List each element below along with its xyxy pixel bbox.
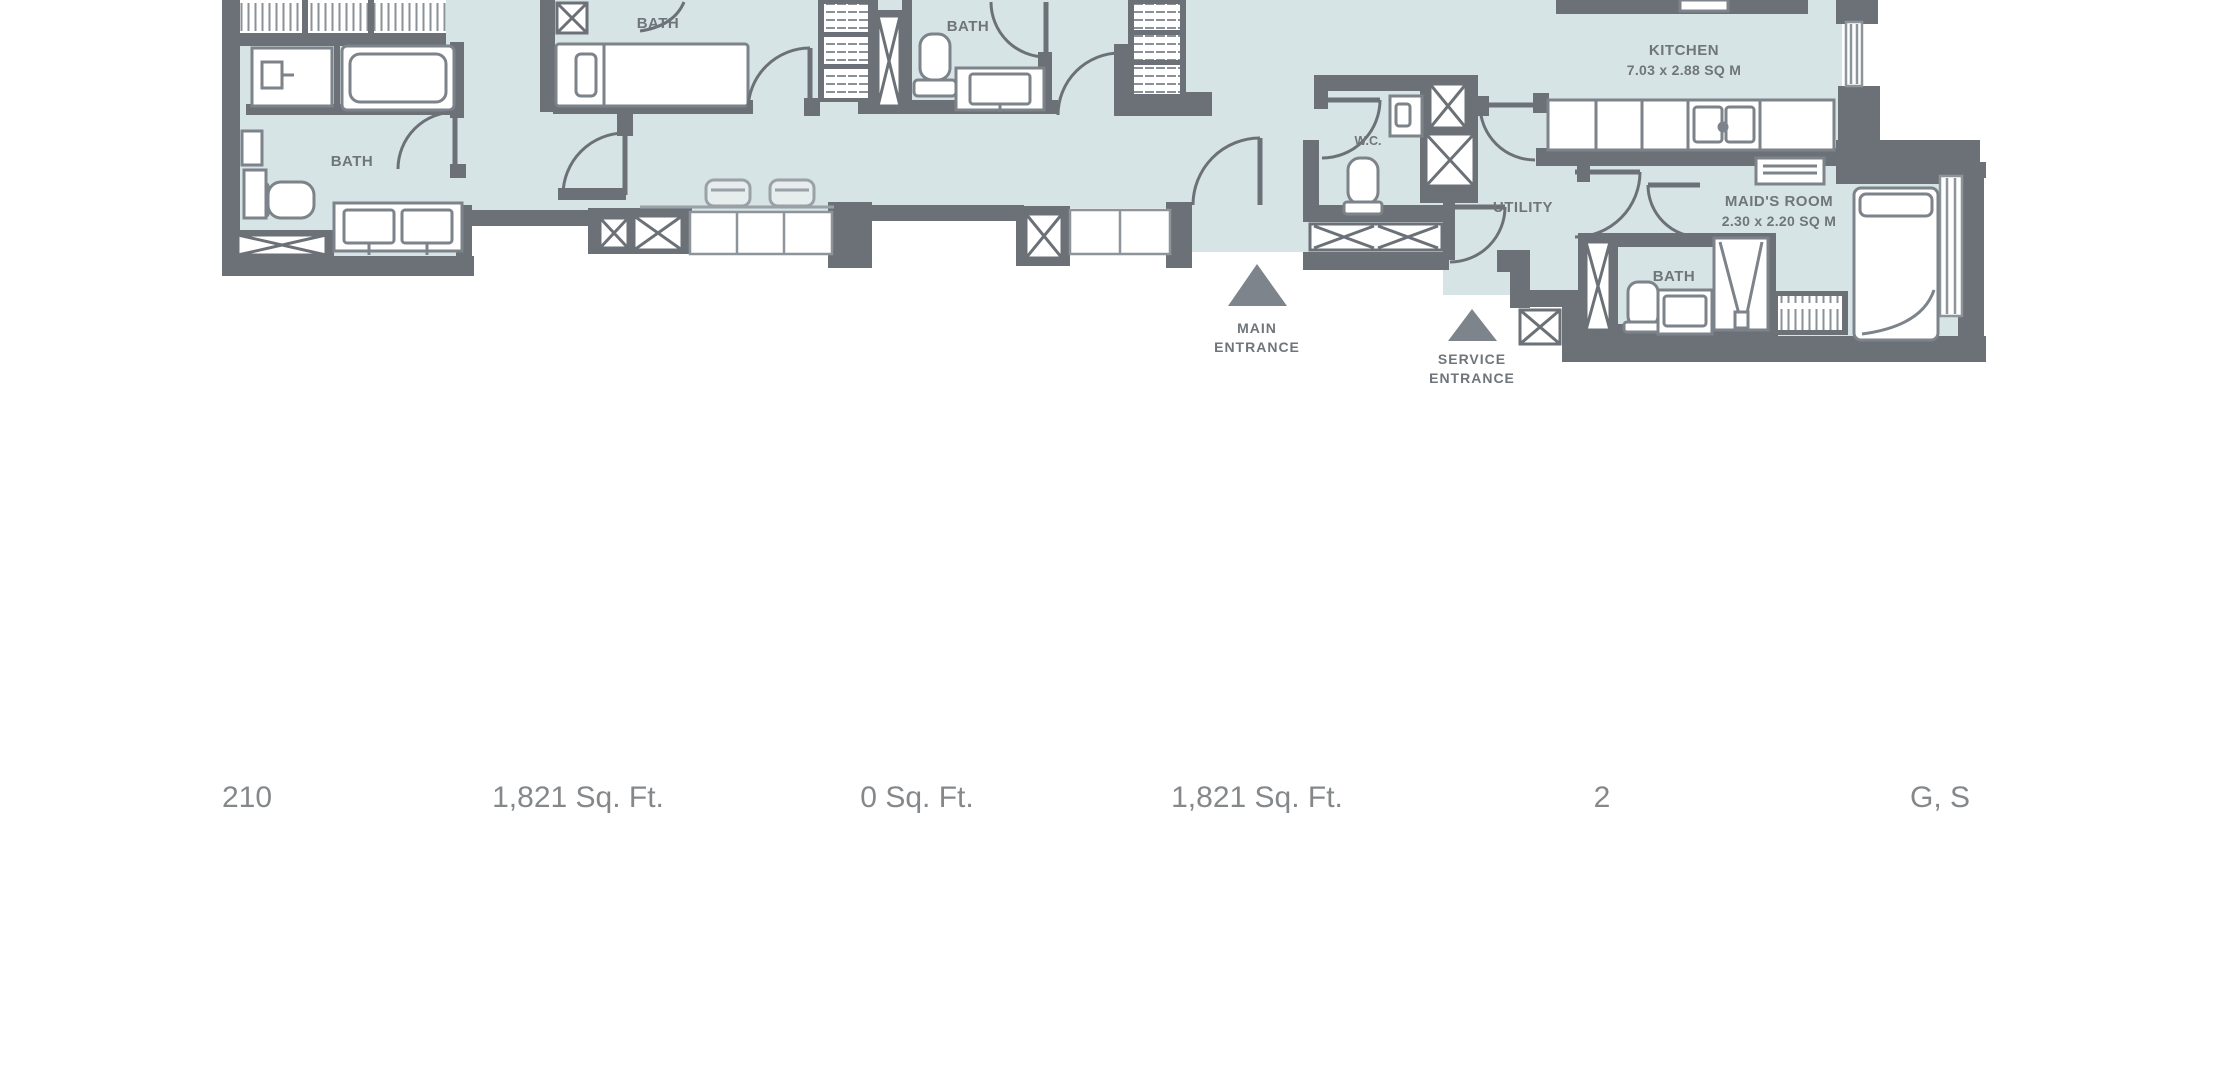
floor-plan: BATH BATH BATH W.C. UTILITY KITCHEN 7.03… (0, 0, 2220, 1080)
unit-count: 2 (1594, 781, 1611, 815)
label-utility: UTILITY (1493, 199, 1553, 216)
shower-icon (1714, 238, 1768, 330)
label-bath-2: BATH (637, 15, 680, 32)
label-maids-bath: BATH (1653, 268, 1696, 285)
unit-listing-page: BATH BATH BATH W.C. UTILITY KITCHEN 7.03… (0, 0, 2220, 1080)
toilet-icon (914, 34, 956, 96)
vanity-icon (956, 68, 1044, 112)
service-entrance-label-line2: ENTRANCE (1429, 370, 1515, 386)
unit-type-code: G, S (1910, 781, 1970, 815)
bed-icon (1854, 188, 1938, 340)
label-maids-room: MAID'S ROOM (1725, 193, 1833, 210)
label-bath-master: BATH (331, 153, 374, 170)
label-kitchen-dims: 7.03 x 2.88 SQ M (1627, 62, 1742, 78)
main-entrance-label-line1: MAIN (1237, 320, 1277, 336)
label-bath-3: BATH (947, 18, 990, 35)
fcu-unit-icon (1756, 158, 1824, 184)
suite-area: 1,821 Sq. Ft. (492, 781, 664, 815)
main-entrance-triangle-icon (1228, 264, 1287, 306)
balcony-area: 0 Sq. Ft. (860, 781, 973, 815)
appliance (1680, 0, 1728, 11)
unit-number: 210 (222, 781, 272, 815)
double-vanity-icon (334, 203, 462, 255)
vanity-icon (1658, 290, 1712, 334)
toilet-icon (1344, 158, 1382, 214)
toilet-icon (1624, 282, 1662, 332)
label-wc: W.C. (1354, 134, 1381, 148)
bathtub-icon (342, 46, 454, 110)
niche (242, 131, 262, 165)
label-kitchen: KITCHEN (1649, 42, 1719, 59)
label-maids-room-dims: 2.30 x 2.20 SQ M (1722, 213, 1837, 229)
service-entrance-label-line1: SERVICE (1438, 351, 1506, 367)
total-area: 1,821 Sq. Ft. (1171, 781, 1343, 815)
service-entrance-triangle-icon (1448, 309, 1497, 341)
wc-basin-icon (1390, 96, 1422, 136)
main-entrance-label-line2: ENTRANCE (1214, 339, 1300, 355)
shower-icon (252, 48, 332, 106)
bed-icon (556, 44, 748, 106)
niche (244, 170, 266, 218)
kitchen-counter-icon (1548, 100, 1834, 150)
